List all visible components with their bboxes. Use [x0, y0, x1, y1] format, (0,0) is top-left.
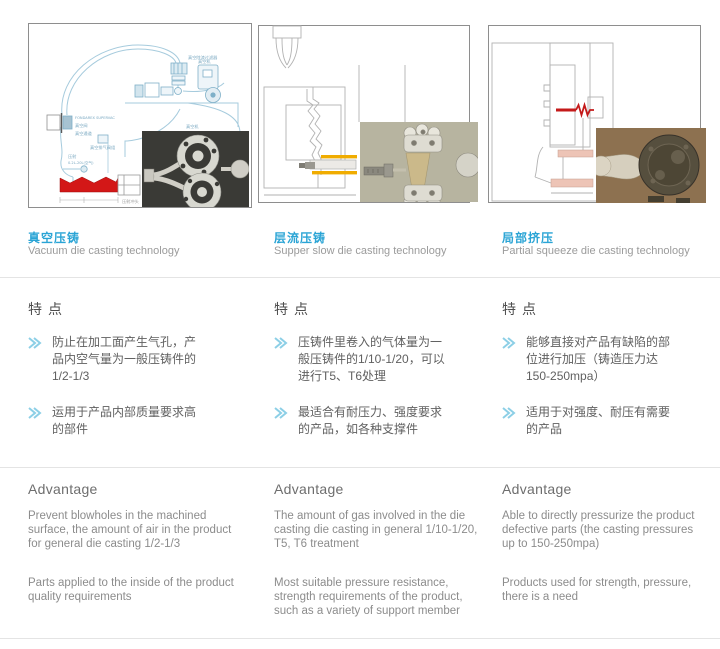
column-title-zh: 真空压铸	[28, 229, 80, 246]
column-title-zh: 层流压铸	[274, 229, 326, 246]
features-heading: 特点	[274, 299, 314, 319]
feature-text: 适用于对强度、耐压有需要的产品	[526, 404, 674, 438]
advantage-paragraph: Products used for strength, pressure, th…	[502, 576, 708, 604]
feature-item: 压铸件里卷入的气体量为一般压铸件的1/10-1/20，可以进行T5、T6处理	[274, 334, 446, 385]
advantage-paragraph: The amount of gas involved in the die ca…	[274, 509, 480, 551]
advantage-paragraph: Prevent blowholes in the machined surfac…	[28, 509, 234, 551]
feature-text: 防止在加工面产生气孔，产品内空气量为一般压铸件的1/2-1/3	[52, 334, 200, 385]
column-title-en: Partial squeeze die casting technology	[502, 245, 690, 257]
column-squeeze: 局部挤压 Partial squeeze die casting technol…	[502, 0, 720, 649]
advantage-heading: Advantage	[502, 481, 572, 497]
double-chevron-icon	[274, 407, 288, 419]
feature-item: 能够直接对产品有缺陷的部位进行加压（铸造压力达150-250mpa）	[502, 334, 674, 385]
double-chevron-icon	[502, 337, 516, 349]
brochure-page: 真空除渣过滤器 真空机 FONDAREX SUPERVAC 真空阀 真空通道 真…	[0, 0, 720, 649]
column-title-en: Supper slow die casting technology	[274, 245, 446, 257]
double-chevron-icon	[28, 337, 42, 349]
feature-text: 压铸件里卷入的气体量为一般压铸件的1/10-1/20，可以进行T5、T6处理	[298, 334, 446, 385]
advantage-heading: Advantage	[274, 481, 344, 497]
feature-item: 最适合有耐压力、强度要求的产品，如各种支撑件	[274, 404, 446, 438]
column-vacuum: 真空压铸 Vacuum die casting technology 特点 防止…	[28, 0, 252, 649]
column-title-en: Vacuum die casting technology	[28, 245, 179, 257]
advantage-paragraph: Able to directly pressurize the product …	[502, 509, 708, 551]
features-heading: 特点	[502, 299, 542, 319]
feature-text: 最适合有耐压力、强度要求的产品，如各种支撑件	[298, 404, 446, 438]
double-chevron-icon	[502, 407, 516, 419]
feature-text: 能够直接对产品有缺陷的部位进行加压（铸造压力达150-250mpa）	[526, 334, 674, 385]
column-title-zh: 局部挤压	[502, 229, 554, 246]
double-chevron-icon	[28, 407, 42, 419]
feature-item: 防止在加工面产生气孔，产品内空气量为一般压铸件的1/2-1/3	[28, 334, 200, 385]
features-heading: 特点	[28, 299, 68, 319]
advantage-paragraph: Parts applied to the inside of the produ…	[28, 576, 234, 604]
double-chevron-icon	[274, 337, 288, 349]
advantage-paragraph: Most suitable pressure resistance, stren…	[274, 576, 480, 618]
feature-item: 适用于对强度、耐压有需要的产品	[502, 404, 674, 438]
feature-text: 运用于产品内部质量要求高的部件	[52, 404, 200, 438]
column-slow: 层流压铸 Supper slow die casting technology …	[274, 0, 498, 649]
feature-item: 运用于产品内部质量要求高的部件	[28, 404, 200, 438]
advantage-heading: Advantage	[28, 481, 98, 497]
